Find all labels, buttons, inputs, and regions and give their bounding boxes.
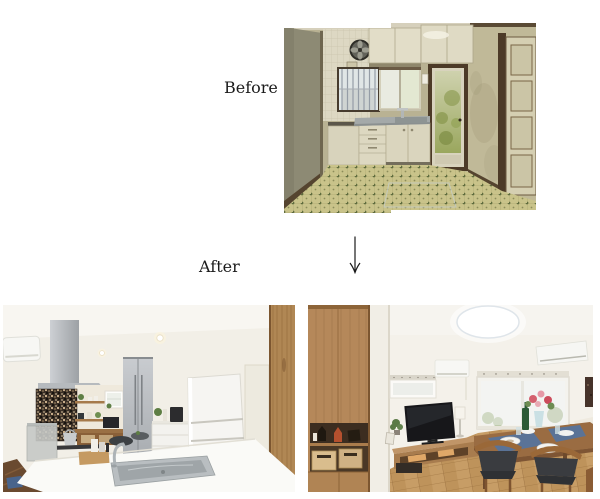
before-label: Before [224,79,278,97]
page-canvas: Before [0,0,600,499]
before-photo [284,23,536,213]
before-photo-illustration [284,23,536,213]
after-living-photo [308,305,593,492]
after-label: After [199,258,240,276]
after-living-illustration [308,305,593,492]
after-kitchen-photo [3,305,295,492]
after-kitchen-illustration [3,305,295,492]
down-arrow-icon [348,236,362,274]
